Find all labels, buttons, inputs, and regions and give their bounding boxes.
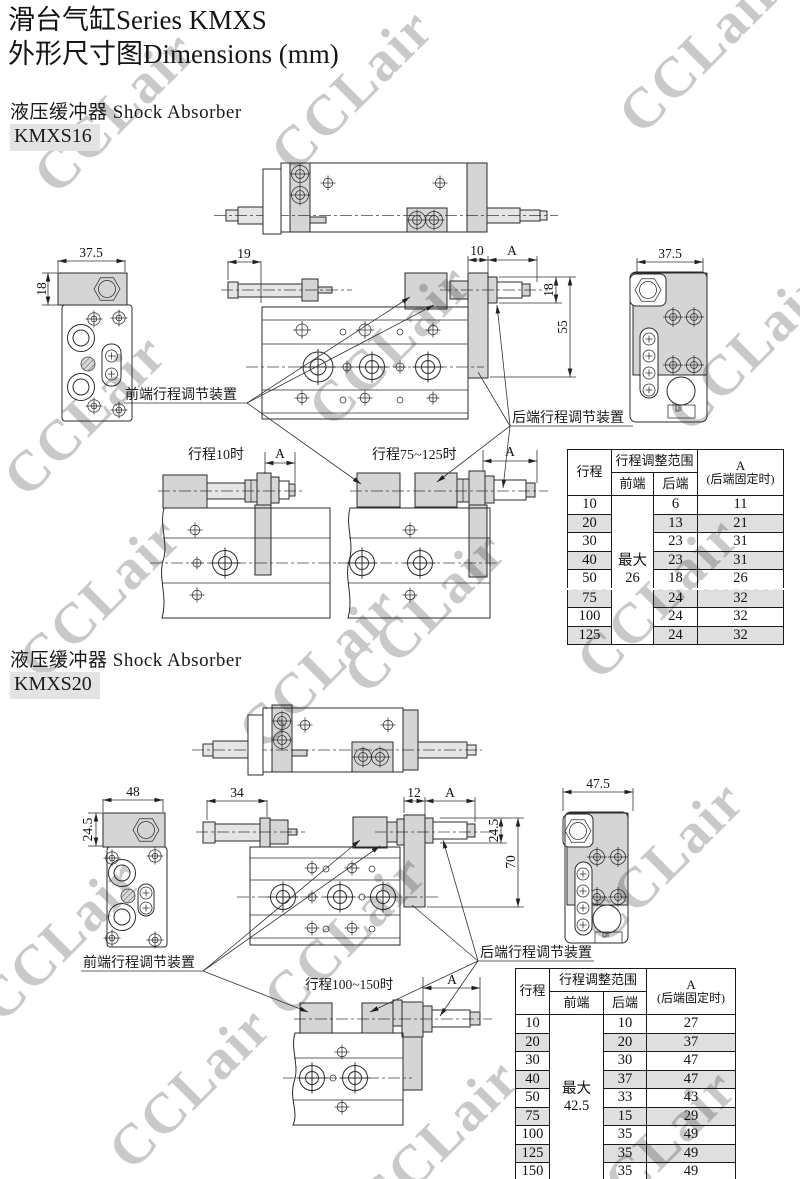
a-cell: 47 (647, 1070, 736, 1089)
stroke-cell: 20 (568, 514, 612, 533)
dim-left-height-20: 24.5 (80, 817, 95, 841)
col-a-line1: A (686, 977, 695, 992)
stroke-cell: 10 (568, 496, 612, 515)
stroke-cell: 150 (516, 1163, 550, 1179)
label-rear-adjuster-16: 后端行程调节装置 (512, 410, 624, 426)
rear-cell: 23 (654, 551, 698, 570)
a-cell: 49 (647, 1126, 736, 1145)
a-cell: 32 (698, 589, 784, 608)
table-row: 501826 (568, 570, 784, 589)
table-row: 1253549 (516, 1144, 736, 1163)
kmxs16-front-view: 19 10 A 18 55 (221, 243, 576, 419)
kmxs20-top-view (192, 705, 482, 775)
a-cell: 47 (647, 1052, 736, 1071)
col-range: 行程调整范围 (612, 450, 698, 473)
rear-cell: 13 (654, 514, 698, 533)
stroke-cell: 100 (516, 1126, 550, 1145)
stroke-cell: 50 (516, 1089, 550, 1108)
label-variant2-16: 行程75~125时 (372, 447, 457, 463)
dim-front-plate-16: 10 (470, 243, 484, 258)
kmxs20-right-view: 47.5 (563, 776, 633, 943)
stroke-cell: 10 (516, 1015, 550, 1034)
stroke-cell: 20 (516, 1033, 550, 1052)
kmxs20-left-view: 48 24.5 (80, 784, 167, 949)
kmxs16-top-view (214, 163, 558, 234)
dim-right-width-20: 47.5 (586, 776, 610, 791)
a-cell: 49 (647, 1144, 736, 1163)
kmxs16-right-view: 37.5 (630, 246, 707, 422)
rear-cell: 35 (604, 1163, 647, 1179)
rear-cell: 33 (604, 1089, 647, 1108)
rear-cell: 37 (604, 1070, 647, 1089)
a-cell: 37 (647, 1033, 736, 1052)
a-cell: 43 (647, 1089, 736, 1108)
dim-variant2-a-16: A (505, 444, 515, 459)
watermark-text: CCLair (606, 0, 795, 146)
kmxs20-front-view: 34 12 A 24.5 70 (196, 785, 524, 945)
page-title-line2: 外形尺寸图Dimensions (mm) (8, 38, 339, 72)
dim-left-width-16: 37.5 (79, 245, 103, 260)
stroke-cell: 40 (568, 551, 612, 570)
dim-variant1-a-20: A (447, 972, 457, 987)
rear-cell: 35 (604, 1126, 647, 1145)
table-row: 402331 (568, 551, 784, 570)
a-cell: 31 (698, 551, 784, 570)
stroke-cell: 75 (568, 589, 612, 608)
page: CCLairCCLairCCLairCCLairCCLairCCLairCCLa… (0, 0, 800, 1179)
dim-front-a-20: A (445, 785, 455, 800)
dim-total-h-20: 70 (503, 855, 518, 869)
stroke-cell: 30 (568, 533, 612, 552)
rear-cell: 23 (654, 533, 698, 552)
table-row: 303047 (516, 1052, 736, 1071)
section1-subtitle: 液压缓冲器 Shock Absorber (10, 97, 242, 124)
label-front-adjuster-16: 前端行程调节装置 (125, 386, 237, 403)
rear-cell: 35 (604, 1144, 647, 1163)
front-max-cell: 最大42.5 (550, 1015, 604, 1179)
a-cell: 49 (647, 1163, 736, 1179)
kmxs16-stroke-table: 行程 行程调整范围 A(后端固定时) 前端 后端 10最大26611201321… (567, 449, 784, 645)
table-row: 1252432 (568, 626, 784, 645)
label-front-adjuster-20: 前端行程调节装置 (83, 954, 195, 971)
front-max-cell: 最大26 (612, 496, 654, 645)
table-row: 10最大42.51027 (516, 1015, 736, 1034)
col-stroke: 行程 (568, 450, 612, 496)
label-variant1-16: 行程10时 (188, 447, 244, 463)
stroke-cell: 125 (568, 626, 612, 645)
table-row: 503343 (516, 1089, 736, 1108)
kmxs16-left-view: 37.5 18 (34, 245, 132, 421)
dim-left-width-20: 48 (126, 784, 140, 799)
table-row: 1003549 (516, 1126, 736, 1145)
rear-cell: 24 (654, 608, 698, 627)
dim-front-a-16: A (507, 243, 517, 258)
a-cell: 31 (698, 533, 784, 552)
table-row: 202037 (516, 1033, 736, 1052)
table-row: 201321 (568, 514, 784, 533)
label-rear-adjuster-20: 后端行程调节装置 (480, 945, 592, 961)
dim-right-width-16: 37.5 (658, 246, 682, 261)
table-row: 403747 (516, 1070, 736, 1089)
kmxs16-variant2: 行程75~125时 A (338, 444, 548, 618)
dim-rod-h-20: 24.5 (486, 818, 501, 842)
table-row: 751529 (516, 1107, 736, 1126)
stroke-cell: 40 (516, 1070, 550, 1089)
col-a-line1: A (736, 458, 745, 473)
rear-cell: 10 (604, 1015, 647, 1034)
a-cell: 27 (647, 1015, 736, 1034)
page-title: 滑台气缸Series KMXS 外形尺寸图Dimensions (mm) (8, 4, 339, 72)
a-cell: 21 (698, 514, 784, 533)
table-row: 302331 (568, 533, 784, 552)
a-cell: 26 (698, 570, 784, 589)
dim-front-plate-20: 12 (407, 785, 421, 800)
a-cell: 29 (647, 1107, 736, 1126)
kmxs20-stroke-table: 行程 行程调整范围 A(后端固定时) 前端 后端 10最大42.51027202… (515, 968, 736, 1179)
stroke-cell: 30 (516, 1052, 550, 1071)
dim-variant1-a-16: A (275, 446, 285, 461)
label-variant1-20: 行程100~150时 (305, 977, 393, 992)
dim-total-h-16: 55 (555, 320, 570, 334)
rear-cell: 24 (654, 589, 698, 608)
rear-cell: 20 (604, 1033, 647, 1052)
a-cell: 11 (698, 496, 784, 515)
rear-cell: 18 (654, 570, 698, 589)
col-rear: 后端 (654, 473, 698, 496)
dim-left-height-16: 18 (34, 282, 49, 296)
stroke-cell: 100 (568, 608, 612, 627)
col-front: 前端 (550, 992, 604, 1015)
stroke-cell: 50 (568, 570, 612, 589)
rear-cell: 15 (604, 1107, 647, 1126)
kmxs20-variant1: 行程100~150时 A (283, 972, 492, 1125)
stroke-cell: 75 (516, 1107, 550, 1126)
col-a: A(后端固定时) (698, 450, 784, 496)
col-a-line2: (后端固定时) (698, 473, 783, 487)
table-row: 1503549 (516, 1163, 736, 1179)
col-a: A(后端固定时) (647, 969, 736, 1015)
dim-rod-h-16: 18 (541, 283, 556, 297)
a-cell: 32 (698, 626, 784, 645)
table-row: 1002432 (568, 608, 784, 627)
col-stroke: 行程 (516, 969, 550, 1015)
col-range: 行程调整范围 (550, 969, 647, 992)
table-row: 752432 (568, 589, 784, 608)
kmxs16-variant1: 行程10时 A (150, 446, 340, 618)
rear-cell: 24 (654, 626, 698, 645)
page-title-line1: 滑台气缸Series KMXS (8, 4, 339, 38)
col-front: 前端 (612, 473, 654, 496)
dim-front-rod-16: 19 (237, 246, 251, 261)
rear-cell: 30 (604, 1052, 647, 1071)
rear-cell: 6 (654, 496, 698, 515)
col-a-line2: (后端固定时) (647, 992, 735, 1006)
col-rear: 后端 (604, 992, 647, 1015)
stroke-cell: 125 (516, 1144, 550, 1163)
dim-front-rod-20: 34 (230, 785, 244, 800)
table-row: 10最大26611 (568, 496, 784, 515)
a-cell: 32 (698, 608, 784, 627)
